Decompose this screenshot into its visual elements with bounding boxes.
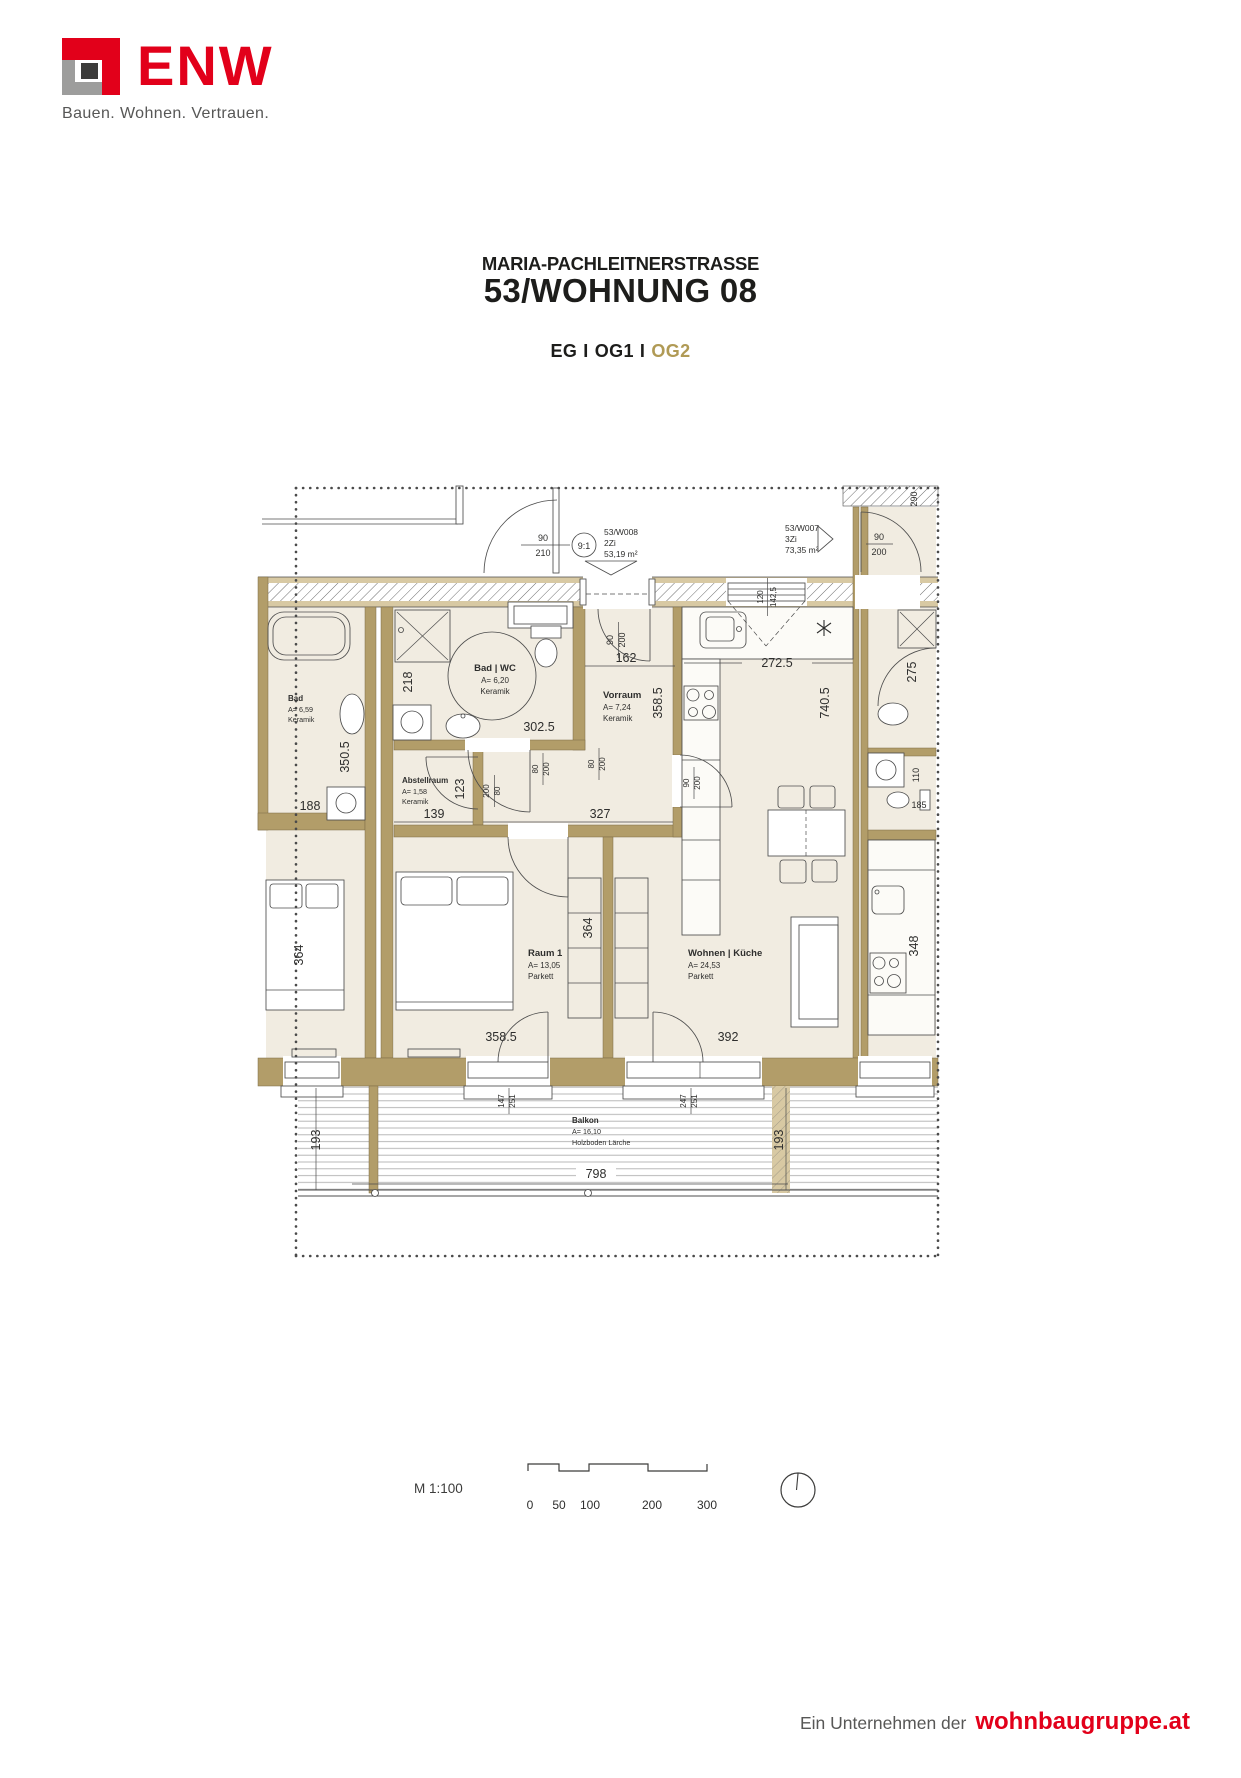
scale-tick-300: 300 [697, 1498, 717, 1512]
scale-bar-line [528, 1464, 707, 1471]
room-raum1-area: A= 13,05 [528, 961, 561, 970]
floor-separator: I [634, 341, 651, 361]
dim-badwc-door-w: 80 [531, 764, 540, 773]
dim-apt-depth: 740.5 [818, 687, 832, 718]
room-wohnen-name: Wohnen | Küche [688, 948, 762, 959]
dim-wohnen-door-w: 90 [682, 778, 691, 787]
room-vorraum-floor: Keramik [603, 714, 633, 723]
nb2-washer-icon [868, 753, 904, 787]
room-abstell-area: A= 1,58 [402, 787, 427, 796]
dim-kitchen-w: 272.5 [761, 656, 792, 670]
dim-baldoor2-b: 251 [690, 1094, 699, 1108]
dim-wardrobe: 364 [581, 918, 595, 939]
room-nbbad-area: A= 6,59 [288, 705, 313, 714]
tab-og1[interactable]: OG1 [595, 341, 634, 361]
dim-wohnen-door-h: 200 [693, 776, 702, 790]
sofa-icon [791, 917, 838, 1027]
scale-tick-200: 200 [642, 1498, 662, 1512]
north-compass-icon [778, 1470, 818, 1510]
dim-nb-kitchen: 348 [907, 936, 921, 957]
dim-kwin-b: 142,5 [769, 586, 778, 607]
room-balkon-area: A= 16,10 [572, 1127, 601, 1136]
tab-eg[interactable]: EG [550, 341, 577, 361]
dim-entry-h: 200 [617, 632, 627, 647]
room-badwc-area: A= 6,20 [481, 676, 509, 685]
dim-nb-bad-w: 188 [300, 799, 321, 813]
dim-vorraum-len: 358.5 [651, 687, 665, 718]
scale-tick-0: 0 [527, 1498, 534, 1512]
enw-logo: ENW [62, 38, 274, 97]
dim-vorraum-w: 162 [616, 651, 637, 665]
unit-w008-size: 2Zi [604, 538, 616, 548]
logo-tagline: Bauen. Wohnen. Vertrauen. [62, 105, 269, 123]
dim-nb-bad-len: 350.5 [338, 741, 352, 772]
nb2-washbasin-icon [878, 703, 908, 725]
dim-stair-door-w: 90 [538, 533, 548, 543]
stair-door [484, 488, 559, 573]
washbasin-icon [446, 714, 480, 738]
room-wohnen-floor: Parkett [688, 972, 714, 981]
dim-nb-room: 364 [292, 945, 306, 966]
dim-raum1-door-h: 200 [598, 757, 607, 771]
room-nbbad-name: Bad [288, 694, 303, 703]
dim-nb-wc-depth: 110 [911, 768, 921, 782]
dim-wohnen-w: 392 [718, 1030, 739, 1044]
room-balkon-floor: Holzboden Lärche [572, 1138, 630, 1147]
floor-separator: I [577, 341, 594, 361]
scale-label: M 1:100 [414, 1481, 463, 1496]
dim-entry-w: 90 [605, 635, 615, 645]
dim-badwc-w: 302.5 [523, 720, 554, 734]
stair-ref: 9:1 [578, 541, 591, 551]
dim-abstell-h: 123 [453, 779, 467, 800]
room-abstell-floor: Keramik [402, 797, 429, 806]
nb-kitchen-counter [868, 840, 935, 1035]
nb-washer-icon [327, 787, 365, 820]
dim-abstell-door-b: 80 [493, 786, 502, 795]
dim-nb-shower: 275 [905, 662, 919, 683]
unit-w008-area: 53,19 m² [604, 549, 638, 559]
scale-bar: 0 50 100 200 300 [518, 1455, 723, 1517]
room-wohnen-area: A= 24,53 [688, 961, 721, 970]
washer-icon [393, 705, 431, 740]
scale-tick-100: 100 [580, 1498, 600, 1512]
room-vorraum-area: A= 7,24 [603, 703, 631, 712]
dim-kwin-a: 120 [756, 590, 765, 604]
bed-icon [396, 872, 513, 1010]
dim-raum1-door-w: 80 [587, 759, 596, 768]
dim-stair-door-h: 210 [535, 548, 550, 558]
dim-raum1-w: 358.5 [485, 1030, 516, 1044]
dim-nb-top: 290 [909, 491, 919, 506]
dim-badwc-h: 218 [401, 672, 415, 693]
dim-nb-door-h: 200 [871, 547, 886, 557]
footer: Ein Unternehmen der wohnbaugruppe.at [800, 1708, 1190, 1736]
dim-nb-wc: 185 [911, 800, 926, 810]
unit-w007-area: 73,35 m² [785, 545, 819, 555]
unit-w007-size: 3Zi [785, 534, 797, 544]
room-raum1-floor: Parkett [528, 972, 554, 981]
room-abstell-name: Abstellraum [402, 776, 448, 785]
room-raum1-name: Raum 1 [528, 948, 563, 959]
logo-wordmark: ENW [137, 38, 274, 94]
dim-abstell-w: 139 [424, 807, 445, 821]
dim-nb-door-w: 90 [874, 532, 884, 542]
enw-logo-icon [62, 38, 120, 97]
vanity-icon [508, 602, 573, 628]
footer-brand-link[interactable]: wohnbaugruppe.at [975, 1708, 1190, 1736]
scale-tick-50: 50 [552, 1498, 566, 1512]
room-balkon-name: Balkon [572, 1116, 599, 1125]
room-vorraum-name: Vorraum [603, 690, 641, 701]
unit-w007-id: 53/W007 [785, 523, 819, 533]
unit-tags: 53/W008 2Zi 53,19 m² 53/W007 3Zi 73,35 m… [585, 523, 833, 575]
dim-baldoor1-a: 147 [497, 1094, 506, 1108]
room-badwc-floor: Keramik [480, 687, 510, 696]
nb-washbasin-icon [340, 694, 364, 734]
room-badwc-name: Bad | WC [474, 663, 516, 674]
room-nbbad-floor: Keramik [288, 715, 315, 724]
dim-corridor-w: 327 [590, 807, 611, 821]
unit-w007-marker-icon [818, 526, 833, 552]
dim-baldoor2-a: 247 [679, 1094, 688, 1108]
unit-w008-marker-icon [585, 561, 637, 575]
floor-selector: EGIOG1IOG2 [0, 341, 1241, 362]
apartment-title: 53/WOHNUNG 08 [0, 272, 1241, 310]
dim-balcony-depth-r: 193 [772, 1130, 786, 1151]
dim-abstell-door-a: 200 [482, 784, 491, 798]
unit-w008-id: 53/W008 [604, 527, 638, 537]
dim-baldoor1-b: 251 [508, 1094, 517, 1108]
tab-og2-active[interactable]: OG2 [651, 341, 690, 361]
floor-plan: 90 210 9:1 120 142,5 90 200 162 272.5 35… [255, 420, 945, 1270]
dim-balcony-w: 798 [586, 1167, 607, 1181]
footer-prefix: Ein Unternehmen der [800, 1713, 966, 1734]
page: ENW Bauen. Wohnen. Vertrauen. MARIA-PACH… [0, 0, 1241, 1778]
dim-badwc-door-h: 200 [542, 762, 551, 776]
dim-balcony-depth-l: 193 [309, 1130, 323, 1151]
